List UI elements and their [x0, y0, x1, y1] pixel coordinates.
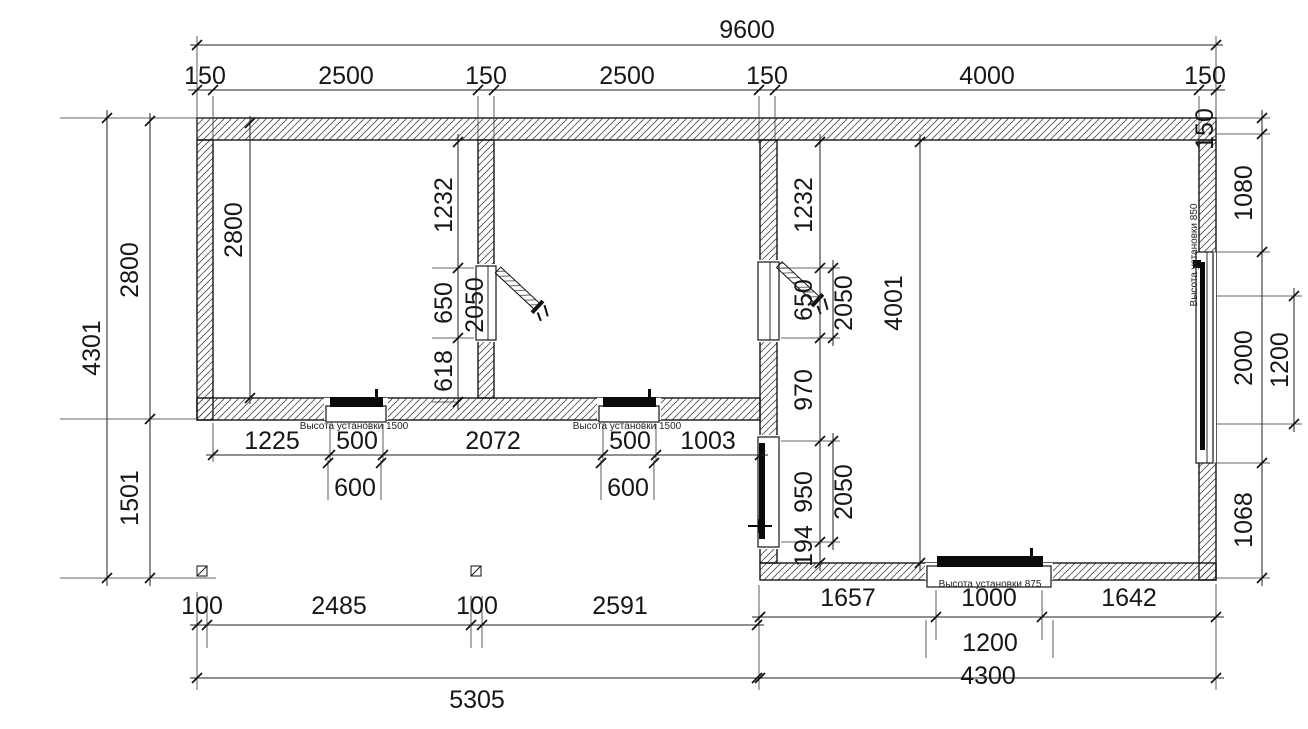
dim-top-150-a: 150 — [184, 62, 226, 90]
dim-wall23-1232: 1232 — [790, 177, 818, 233]
dim-2485: 2485 — [311, 592, 367, 620]
swing-arm-room2 — [493, 264, 554, 322]
walls — [197, 118, 1216, 580]
dim-100-a: 100 — [181, 592, 223, 620]
dim-1225: 1225 — [244, 427, 300, 455]
floor-plan: 9600 150 2500 150 2500 150 4000 150 1225… — [0, 0, 1308, 729]
install-height-label-room3-right: Высота установки 850 — [1189, 203, 1200, 306]
opening-room23-frame — [758, 262, 779, 340]
radiator-room1 — [330, 397, 383, 407]
dim-600-b: 600 — [607, 474, 649, 502]
wall-left — [197, 140, 213, 420]
dim-1003: 1003 — [680, 427, 736, 455]
dim-1200-bottom: 1200 — [962, 629, 1018, 657]
device-room1-frame — [326, 406, 386, 422]
dim-wall12-1232: 1232 — [430, 177, 458, 233]
dim-1657: 1657 — [820, 584, 876, 612]
dim-right-1200: 1200 — [1266, 332, 1294, 388]
dim-room1-2800: 2800 — [220, 202, 248, 258]
dim-600-a: 600 — [334, 474, 376, 502]
radiator-room2 — [603, 397, 656, 407]
dim-2591: 2591 — [592, 592, 648, 620]
dim-right-2000: 2000 — [1230, 330, 1258, 386]
dim-4301: 4301 — [78, 320, 106, 376]
dim-wall12-2050: 2050 — [461, 277, 489, 333]
dim-1642: 1642 — [1101, 584, 1157, 612]
dim-right-150: 150 — [1191, 108, 1219, 150]
annotation-labels: Высота установки 1500 Высота установки 1… — [300, 203, 1200, 590]
dim-top-2500-a: 2500 — [318, 62, 374, 90]
dim-left-2800: 2800 — [116, 242, 144, 298]
dim-wall23-950: 950 — [790, 471, 818, 513]
dim-top-150-c: 150 — [746, 62, 788, 90]
device-room2-frame — [599, 406, 659, 422]
wall-bottom-rooms12 — [197, 398, 760, 420]
dim-top-4000: 4000 — [959, 62, 1015, 90]
dim-wall23-650: 650 — [790, 279, 818, 321]
dim-wall23-2050-top: 2050 — [830, 275, 858, 331]
dim-wall23-194: 194 — [790, 525, 818, 567]
dim-4300: 4300 — [960, 662, 1016, 690]
dim-100-b: 100 — [456, 592, 498, 620]
dim-1501: 1501 — [116, 470, 144, 526]
floor-plan-drawing: 9600 150 2500 150 2500 150 4000 150 1225… — [0, 0, 1308, 729]
dim-wall23-970: 970 — [790, 369, 818, 411]
column-marker-1 — [197, 566, 207, 576]
radiator-right-wall — [1200, 262, 1205, 450]
dim-overall-width: 9600 — [719, 16, 775, 44]
dim-2072: 2072 — [465, 427, 521, 455]
dim-top-150-b: 150 — [465, 62, 507, 90]
column-marker-2 — [471, 566, 481, 576]
radiator-room3 — [937, 556, 1043, 567]
dim-wall12-650: 650 — [430, 282, 458, 324]
install-height-label-room3-bottom: Высота установки 875 — [939, 579, 1042, 590]
dim-4001: 4001 — [880, 275, 908, 331]
dim-right-1080: 1080 — [1230, 165, 1258, 221]
dim-top-150-d: 150 — [1184, 62, 1226, 90]
install-height-label-room1: Высота установки 1500 — [300, 421, 409, 432]
dim-top-2500-b: 2500 — [599, 62, 655, 90]
dim-wall23-2050-bottom: 2050 — [830, 464, 858, 520]
dim-wall12-618: 618 — [430, 350, 458, 392]
install-height-label-room2: Высота установки 1500 — [573, 421, 682, 432]
wall-top — [197, 118, 1216, 140]
dim-right-1068: 1068 — [1230, 492, 1258, 548]
dim-5305: 5305 — [449, 686, 505, 714]
